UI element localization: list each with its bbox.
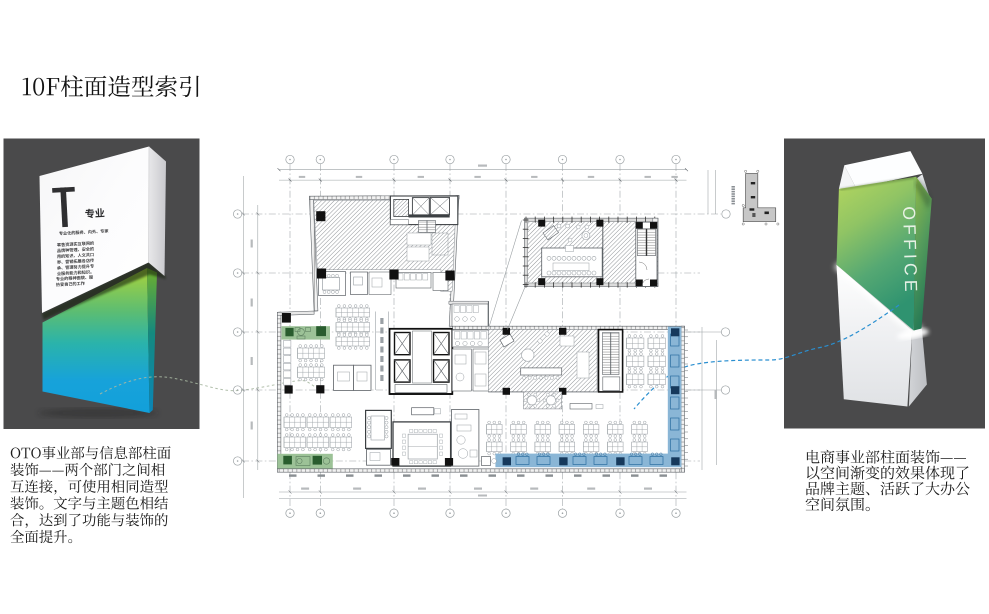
svg-text:OFFICE: OFFICE [899, 206, 921, 296]
